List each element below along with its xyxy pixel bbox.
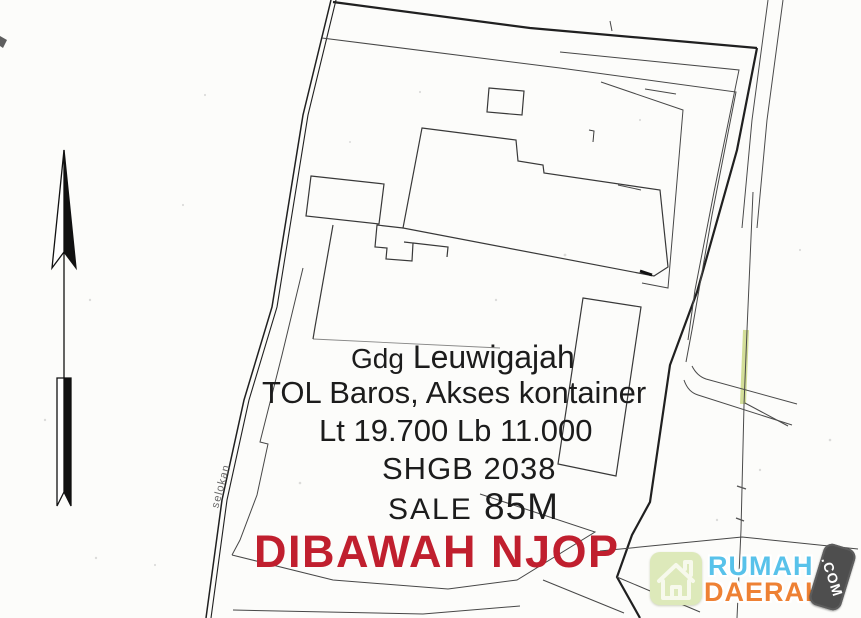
north-arrow-icon bbox=[52, 150, 76, 506]
building-outline-step-ext bbox=[413, 243, 448, 257]
building-outline-main bbox=[403, 128, 668, 276]
logo-tile bbox=[650, 552, 702, 605]
survey-tick bbox=[589, 130, 594, 142]
annotation-certificate: SHGB 2038 bbox=[382, 453, 556, 484]
annotation-sale: SALE 85M bbox=[388, 488, 559, 525]
building-outline-main-step bbox=[375, 225, 413, 261]
sale-label: SALE bbox=[388, 493, 473, 526]
waterway-label: selokan bbox=[209, 463, 232, 509]
building-prefix: Gdg bbox=[351, 343, 404, 374]
annotation-area: Lt 19.700 Lb 11.000 bbox=[319, 415, 593, 446]
rumahdaerah-watermark: RUMAH DAERAH .COM bbox=[648, 545, 861, 618]
building-outline-tab bbox=[487, 88, 524, 115]
annotation-highlight: DIBAWAH NJOP bbox=[254, 529, 620, 574]
annotation-access: TOL Baros, Akses kontainer bbox=[262, 377, 646, 408]
building-outline-annex bbox=[306, 176, 384, 224]
parcel-inner-edge bbox=[313, 225, 333, 339]
house-icon bbox=[650, 552, 702, 605]
road-lines bbox=[684, 0, 797, 618]
sale-value: 85M bbox=[484, 486, 559, 527]
listing-scan: selokan Gdg Leuwigajah TOL Baros, Akses … bbox=[0, 0, 861, 618]
brand-secondary: DAERAH bbox=[704, 577, 826, 608]
annotation-title: Gdg Leuwigajah bbox=[351, 341, 575, 373]
scan-dark-blob bbox=[640, 271, 652, 275]
com-tag: .COM bbox=[807, 542, 857, 613]
scan-edge-mark bbox=[0, 36, 7, 48]
building-name: Leuwigajah bbox=[413, 339, 575, 375]
domain-suffix: .COM bbox=[819, 555, 847, 599]
